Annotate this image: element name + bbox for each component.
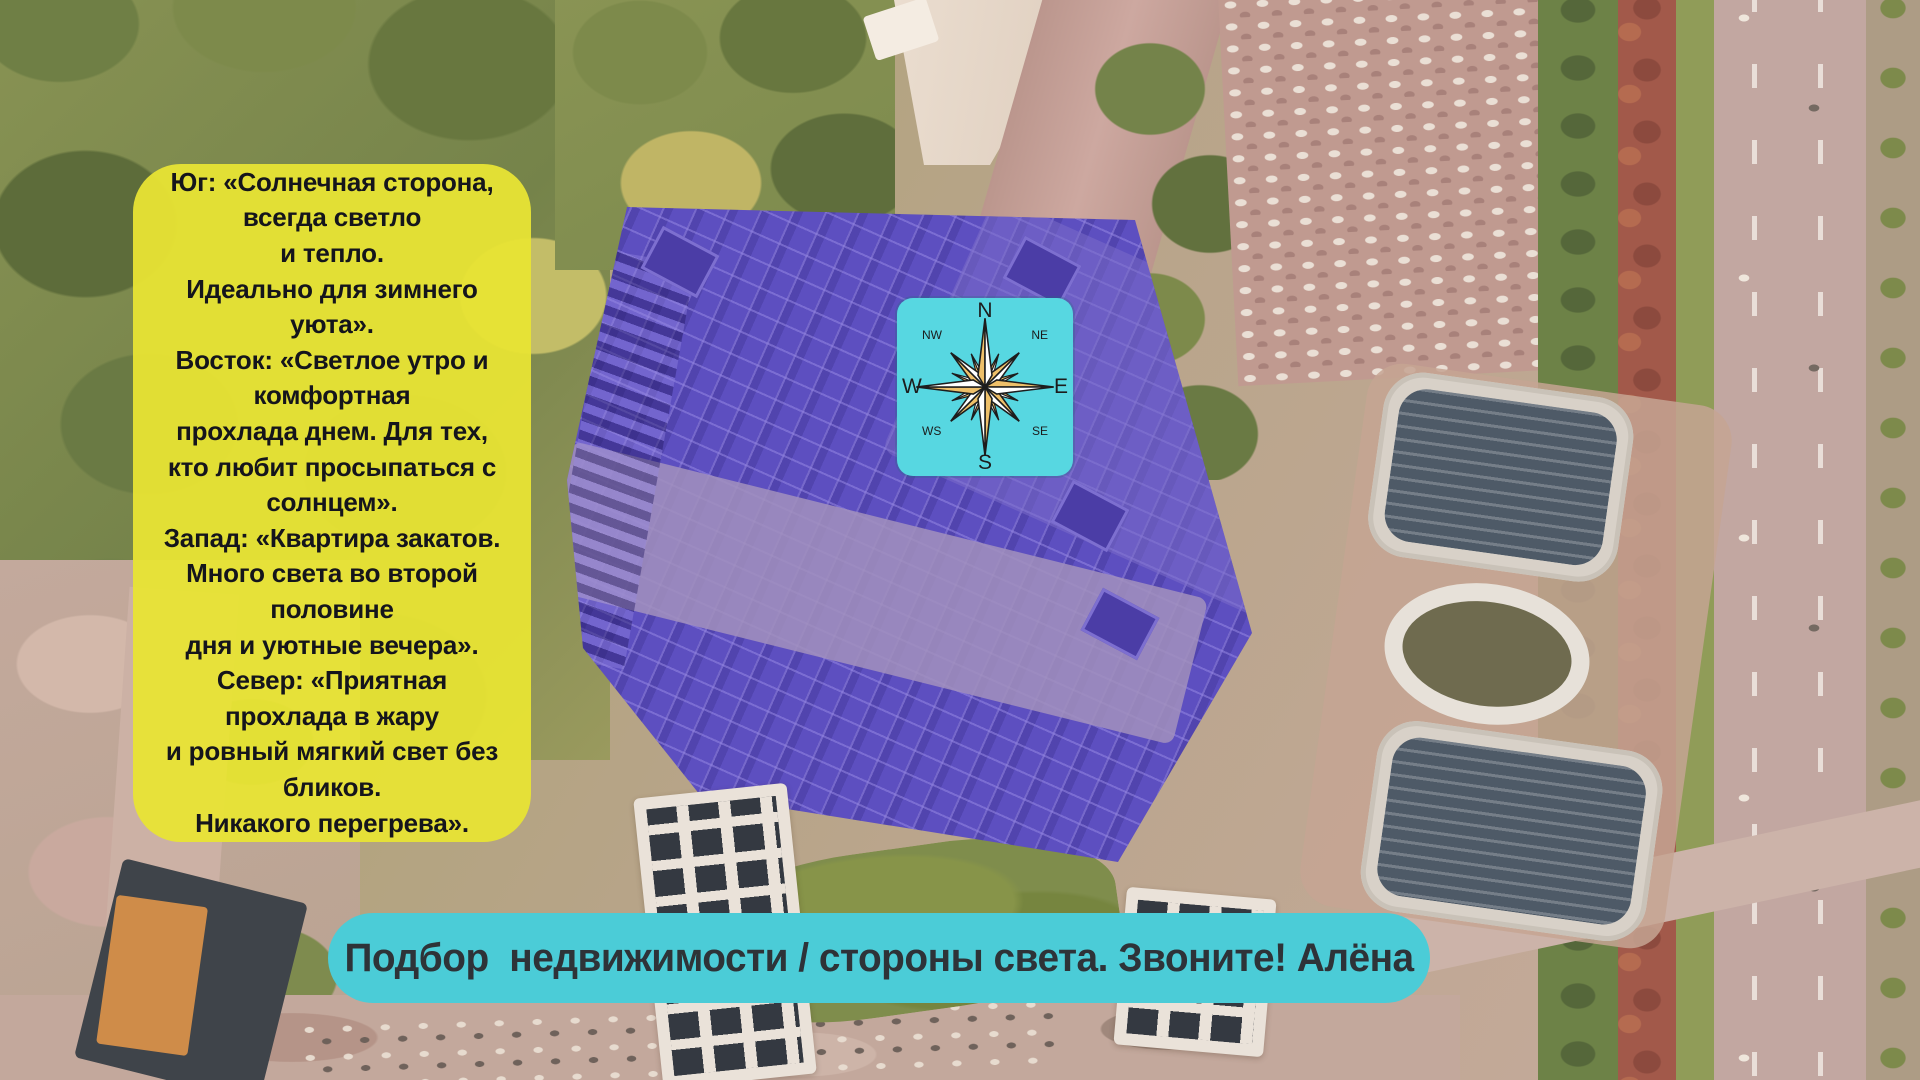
- edge-right-green: [1866, 0, 1920, 1080]
- school-complex: [1296, 359, 1737, 953]
- compass-label-southeast: SE: [1032, 424, 1048, 438]
- cta-banner: Подбор недвижимости / стороны света. Зво…: [328, 913, 1430, 1003]
- info-card: Юг: «Солнечная сторона, всегда светло и …: [133, 164, 531, 842]
- compass-label-southwest: WS: [922, 424, 941, 438]
- school-building-north: [1363, 368, 1638, 587]
- cta-banner-text: Подбор недвижимости / стороны света. Зво…: [344, 936, 1413, 981]
- road-right: [1714, 0, 1866, 1080]
- cars-on-road: [1724, 0, 1854, 1080]
- aerial-real-estate-ad: Юг: «Солнечная сторона, всегда светло и …: [0, 0, 1920, 1080]
- school-roof: [1381, 386, 1620, 569]
- parking-lot: [1218, 0, 1558, 386]
- compass-label-northeast: NE: [1031, 328, 1048, 342]
- compass-label-south: S: [978, 451, 992, 475]
- school-building-south: [1356, 716, 1668, 946]
- school-roof: [1374, 734, 1650, 928]
- info-card-text: Юг: «Солнечная сторона, всегда светло и …: [152, 165, 513, 841]
- compass-label-west: W: [902, 375, 922, 399]
- compass-label-northwest: NW: [922, 328, 942, 342]
- orange-roof: [96, 895, 208, 1056]
- compass-label-east: E: [1054, 375, 1068, 399]
- compass-box: N S W E NW NE WS SE: [897, 298, 1073, 476]
- compass-label-north: N: [977, 299, 992, 323]
